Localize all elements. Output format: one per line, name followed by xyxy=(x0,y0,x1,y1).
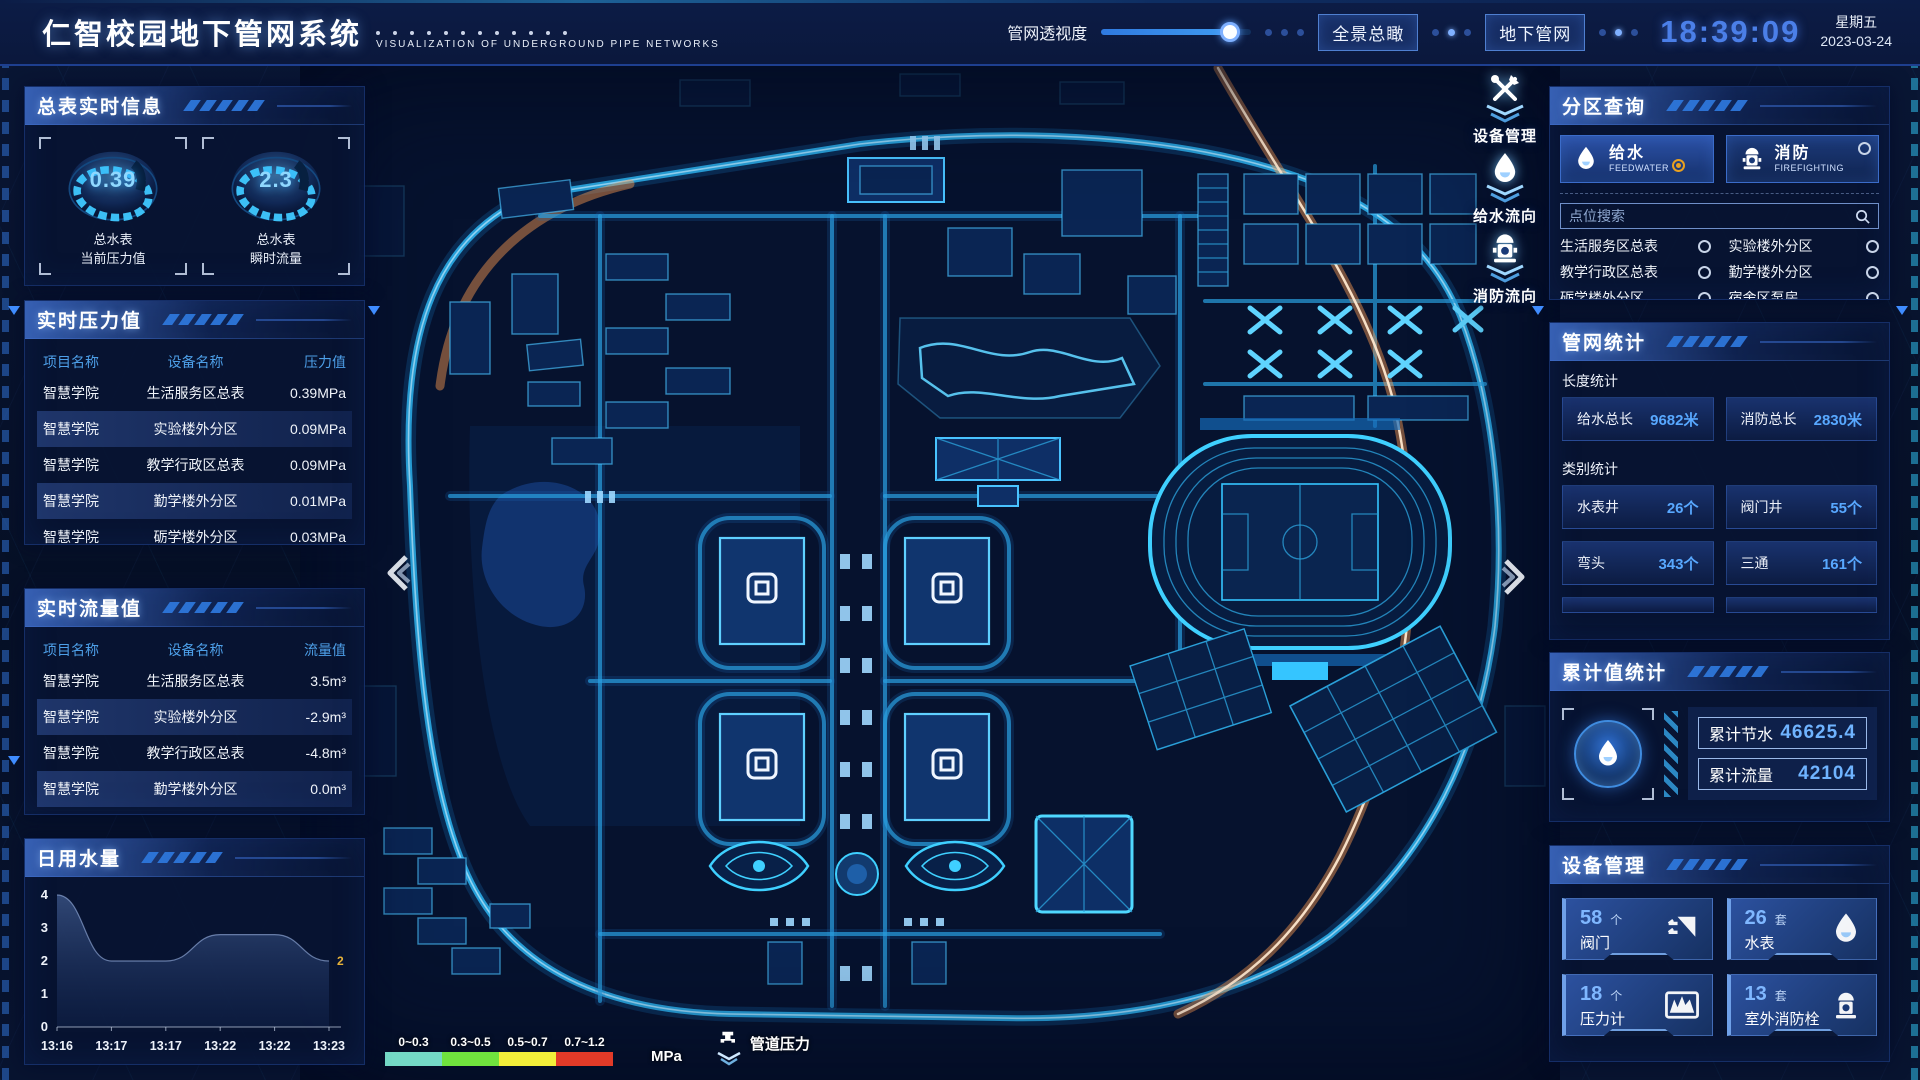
stat-box: 阀门井55个 xyxy=(1726,485,1878,529)
category-stats: 水表井26个阀门井55个弯头343个三通161个 xyxy=(1562,485,1877,585)
stat-box: 水表井26个 xyxy=(1562,485,1714,529)
divider xyxy=(1560,193,1879,194)
tab-feedwater[interactable]: 给水FEEDWATER xyxy=(1560,135,1714,183)
decor-hatch xyxy=(1664,711,1678,797)
decor-slashes xyxy=(1670,336,1744,347)
stat-box: 给水总长9682米 xyxy=(1562,397,1714,441)
point-radio[interactable] xyxy=(1866,240,1879,253)
search-input[interactable] xyxy=(1569,208,1855,224)
device-card-outdoor-hydrant-icon[interactable]: 13套 室外消防栓 xyxy=(1727,974,1878,1036)
decor-dots xyxy=(1265,29,1304,36)
tools-wrench-icon xyxy=(1488,72,1522,106)
tool-label: 设备管理 xyxy=(1473,125,1537,146)
frame-arrow xyxy=(8,756,20,765)
decor-slashes xyxy=(166,602,240,613)
feedwater-flow-tool[interactable]: 给水流向 xyxy=(1473,152,1537,226)
table-row: 智慧学院实验楼外分区-2.9m³ xyxy=(37,699,352,735)
svg-text:13:22: 13:22 xyxy=(259,1039,291,1053)
decor-notch xyxy=(1768,953,1838,960)
svg-text:13:17: 13:17 xyxy=(150,1039,182,1053)
decor-slashes xyxy=(187,100,261,111)
gauge-value: 2.3 xyxy=(202,167,350,193)
svg-text:13:16: 13:16 xyxy=(41,1039,73,1053)
svg-text:2: 2 xyxy=(337,954,344,968)
pipe-opacity-label: 管网透视度 xyxy=(1007,20,1087,44)
pressure-gauge-icon xyxy=(1662,985,1702,1025)
frame-arrow xyxy=(1896,306,1908,315)
point-search-box[interactable] xyxy=(1560,203,1879,229)
decor-line xyxy=(1760,864,1877,866)
legend-color-bar: 0~0.30.3~0.50.5~0.70.7~1.2 xyxy=(385,1035,613,1066)
stat-box xyxy=(1726,597,1878,613)
valve-icon xyxy=(1662,909,1702,949)
cumulative-savings: 累计节水46625.4 xyxy=(1698,717,1867,749)
decor-slashes xyxy=(166,314,240,325)
svg-text:4: 4 xyxy=(41,887,49,902)
gauge-label: 总水表当前压力值 xyxy=(45,231,181,269)
stat-box: 弯头343个 xyxy=(1562,541,1714,585)
panorama-view-button[interactable]: 全景总瞰 xyxy=(1318,14,1418,51)
panel-title: 累计值统计 xyxy=(1562,658,1667,685)
frame-arrow xyxy=(368,306,380,315)
water-drop-icon xyxy=(1574,720,1642,788)
left-edge-decor xyxy=(2,66,9,1080)
svg-text:13:23: 13:23 xyxy=(313,1039,345,1053)
campus-map-canvas xyxy=(300,66,1560,1080)
app-title: 仁智校园地下管网系统 xyxy=(42,11,362,53)
daily-water-chart: 0123413:1613:1713:1713:2213:2213:232 xyxy=(31,881,347,1057)
length-stats: 给水总长9682米消防总长2830米 xyxy=(1562,397,1877,441)
decor-notch xyxy=(1604,953,1674,960)
water-drop-icon xyxy=(1488,152,1522,186)
device-card-water-meter-icon[interactable]: 26套 水表 xyxy=(1727,898,1878,960)
svg-text:13:22: 13:22 xyxy=(204,1039,236,1053)
point-item[interactable]: 实验楼外分区 xyxy=(1729,233,1880,259)
slider-knob[interactable] xyxy=(1220,22,1240,42)
panel-realtime-info: 总表实时信息 0.39 总水表当前压力值 xyxy=(24,86,365,286)
svg-text:1: 1 xyxy=(41,986,48,1001)
device-card-pressure-gauge-icon[interactable]: 18个 压力计 xyxy=(1562,974,1713,1036)
legend-segment: 0.7~1.2 xyxy=(556,1035,613,1066)
decor-slashes xyxy=(1670,859,1744,870)
decor-dots xyxy=(1432,29,1471,36)
panel-title: 实时压力值 xyxy=(37,306,142,333)
left-sidebar: 总表实时信息 0.39 总水表当前压力值 xyxy=(24,86,365,1065)
table-row: 智慧学院勤学楼外分区0.01MPa xyxy=(37,483,352,519)
campus-map[interactable]: 设备管理 给水流向 消防流向 0~0.30.3~0.50.5~0.70 xyxy=(300,66,1560,1080)
decor-dots xyxy=(1599,29,1638,36)
decor-slashes xyxy=(1691,666,1765,677)
stat-box: 消防总长2830米 xyxy=(1726,397,1878,441)
water-drop-icon xyxy=(1573,146,1599,172)
decor-line xyxy=(235,857,352,859)
decor-line xyxy=(1760,105,1877,107)
search-icon[interactable] xyxy=(1855,209,1870,224)
table-row: 智慧学院勤学楼外分区0.0m³ xyxy=(37,771,352,807)
panel-daily-water: 日用水量 0123413:1613:1713:1713:2213:2213:23… xyxy=(24,838,365,1065)
legend-segment: 0~0.3 xyxy=(385,1035,442,1066)
stat-box: 三通161个 xyxy=(1726,541,1878,585)
table-header: 项目名称设备名称压力值 xyxy=(37,349,352,375)
gauge-instant-flow: 2.3 总水表瞬时流量 xyxy=(202,137,350,275)
device-cards: 58个 阀门 26套 水表 18个 压力计 13套 室外消防栓 xyxy=(1562,898,1877,1036)
point-radio[interactable] xyxy=(1698,292,1711,301)
gauge-total-pressure: 0.39 总水表当前压力值 xyxy=(39,137,187,275)
point-item[interactable]: 砺学楼外分区 xyxy=(1560,285,1711,300)
decor-slashes xyxy=(145,852,219,863)
svg-text:13:17: 13:17 xyxy=(95,1039,127,1053)
clock-date-block: 星期五 2023-03-24 xyxy=(1820,13,1892,51)
panel-title: 实时流量值 xyxy=(37,594,142,621)
hydrant-icon xyxy=(1739,146,1765,172)
panel-title: 设备管理 xyxy=(1562,851,1646,878)
point-item[interactable]: 教学行政区总表 xyxy=(1560,259,1711,285)
length-stats-label: 长度统计 xyxy=(1562,371,1877,391)
panel-realtime-pressure: 实时压力值 项目名称设备名称压力值智慧学院生活服务区总表0.39MPa智慧学院实… xyxy=(24,300,365,545)
point-radio[interactable] xyxy=(1866,292,1879,301)
pipe-opacity-slider[interactable] xyxy=(1101,29,1251,35)
hydrant-icon xyxy=(1488,232,1522,266)
chevron-down-icon xyxy=(1483,184,1527,204)
panel-realtime-flow: 实时流量值 项目名称设备名称流量值智慧学院生活服务区总表3.5m³智慧学院实验楼… xyxy=(24,588,365,815)
table-row: 智慧学院生活服务区总表3.5m³ xyxy=(37,663,352,699)
cumulative-flow: 累计流量42104 xyxy=(1698,758,1867,790)
chevron-down-icon xyxy=(1483,104,1527,124)
point-list: 生活服务区总表实验楼外分区教学行政区总表勤学楼外分区砺学楼外分区宿舍区泵房 xyxy=(1560,233,1879,300)
legend-segment: 0.3~0.5 xyxy=(442,1035,499,1066)
decor-line xyxy=(277,105,352,107)
flow-table: 项目名称设备名称流量值智慧学院生活服务区总表3.5m³智慧学院实验楼外分区-2.… xyxy=(25,627,364,815)
decor-line xyxy=(256,607,352,609)
point-radio[interactable] xyxy=(1698,266,1711,279)
svg-text:0: 0 xyxy=(41,1019,48,1034)
slider-fill xyxy=(1101,29,1230,35)
table-row: 智慧学院教学行政区总表0.09MPa xyxy=(37,447,352,483)
outdoor-hydrant-icon xyxy=(1826,985,1866,1025)
map-tool-stack: 设备管理 给水流向 消防流向 xyxy=(1450,72,1560,312)
table-row: 智慧学院生活服务区总表0.39MPa xyxy=(37,375,352,411)
legend-unit: MPa xyxy=(651,1048,682,1065)
table-row: 智慧学院教学行政区总表-4.8m³ xyxy=(37,735,352,771)
fire-flow-tool[interactable]: 消防流向 xyxy=(1473,232,1537,306)
tab-radio[interactable] xyxy=(1858,142,1871,155)
panel-title: 管网统计 xyxy=(1562,328,1646,355)
category-stats-label: 类别统计 xyxy=(1562,459,1877,479)
chevron-down-icon xyxy=(1483,264,1527,284)
svg-text:2: 2 xyxy=(41,953,48,968)
pressure-table: 项目名称设备名称压力值智慧学院生活服务区总表0.39MPa智慧学院实验楼外分区0… xyxy=(25,339,364,545)
device-management-tool[interactable]: 设备管理 xyxy=(1473,72,1537,146)
right-sidebar: 分区查询 给水FEEDWATER 消防FIREFIGHTING 生活服务区总表实… xyxy=(1549,86,1890,1062)
panel-zone-query: 分区查询 给水FEEDWATER 消防FIREFIGHTING 生活服务区总表实… xyxy=(1549,86,1890,300)
panel-title: 分区查询 xyxy=(1562,92,1646,119)
decor-line xyxy=(256,319,352,321)
tool-label: 消防流向 xyxy=(1473,285,1537,306)
panel-device-management: 设备管理 58个 阀门 26套 水表 18个 压力计 13套 室外消防栓 xyxy=(1549,845,1890,1062)
point-item[interactable]: 生活服务区总表 xyxy=(1560,233,1711,259)
panel-pipe-stats: 管网统计 长度统计 给水总长9682米消防总长2830米 类别统计 水表井26个… xyxy=(1549,322,1890,640)
frame-arrow xyxy=(8,306,20,315)
tab-firefighting[interactable]: 消防FIREFIGHTING xyxy=(1726,135,1880,183)
next-view-button[interactable] xyxy=(1500,558,1530,596)
faucet-icon xyxy=(716,1030,742,1066)
clock-time: 18:39:09 xyxy=(1660,14,1800,50)
legend-segment: 0.5~0.7 xyxy=(499,1035,556,1066)
decor-notch xyxy=(1768,1029,1838,1036)
decor-notch xyxy=(1604,1029,1674,1036)
table-row: 智慧学院砺学楼外分区-2.3m³ xyxy=(37,807,352,815)
decor-slashes xyxy=(1670,100,1744,111)
panel-title: 日用水量 xyxy=(37,844,121,871)
point-radio[interactable] xyxy=(1866,266,1879,279)
app-subtitle-block: VISUALIZATION OF UNDERGROUND PIPE NETWOR… xyxy=(376,31,720,53)
gymnasium xyxy=(1036,816,1132,912)
panel-title: 总表实时信息 xyxy=(37,92,163,119)
decor-dots xyxy=(376,31,720,35)
category-stats-clipped xyxy=(1562,597,1877,613)
pressure-legend: 0~0.30.3~0.50.5~0.70.7~1.2 MPa 管道压力 xyxy=(385,1030,810,1066)
table-row: 智慧学院实验楼外分区0.09MPa xyxy=(37,411,352,447)
prev-view-button[interactable] xyxy=(382,554,412,592)
frame-arrow xyxy=(1532,306,1544,315)
app-subtitle: VISUALIZATION OF UNDERGROUND PIPE NETWOR… xyxy=(376,39,720,50)
clock-date: 2023-03-24 xyxy=(1820,32,1892,51)
clock-weekday: 星期五 xyxy=(1820,13,1892,32)
panel-cumulative: 累计值统计 累计节水46625.4 累计流量42104 xyxy=(1549,652,1890,822)
right-edge-decor xyxy=(1911,66,1918,1080)
legend-pressure-label: 管道压力 xyxy=(750,1033,810,1054)
table-row: 智慧学院砺学楼外分区0.03MPa xyxy=(37,519,352,545)
tool-label: 给水流向 xyxy=(1473,205,1537,226)
device-card-valve-icon[interactable]: 58个 阀门 xyxy=(1562,898,1713,960)
underground-pipes-button[interactable]: 地下管网 xyxy=(1485,14,1585,51)
tab-radio[interactable] xyxy=(1672,159,1685,172)
decor-line xyxy=(1781,671,1877,673)
gauge-label: 总水表瞬时流量 xyxy=(208,231,344,269)
cumulative-values: 累计节水46625.4 累计流量42104 xyxy=(1688,707,1877,800)
decor-line xyxy=(1760,341,1877,343)
gauge-value: 0.39 xyxy=(39,167,187,193)
point-item[interactable]: 宿舍区泵房 xyxy=(1729,285,1880,300)
cumulative-icon-frame xyxy=(1562,708,1654,800)
point-item[interactable]: 勤学楼外分区 xyxy=(1729,259,1880,285)
water-meter-icon xyxy=(1826,909,1866,949)
table-header: 项目名称设备名称流量值 xyxy=(37,637,352,663)
stat-box xyxy=(1562,597,1714,613)
point-radio[interactable] xyxy=(1698,240,1711,253)
top-header: 仁智校园地下管网系统 VISUALIZATION OF UNDERGROUND … xyxy=(0,0,1920,66)
svg-text:3: 3 xyxy=(41,920,48,935)
